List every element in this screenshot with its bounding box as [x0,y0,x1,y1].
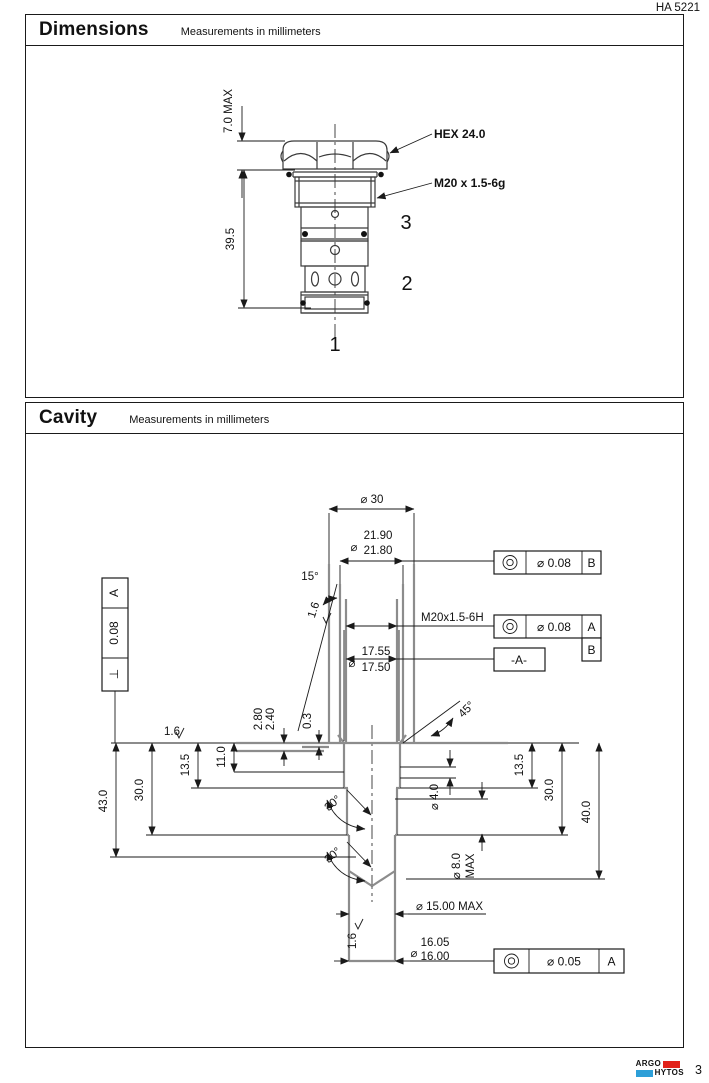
dim-dia2190: 21.90 [364,530,393,542]
dim-length: 39.5 [225,228,237,250]
fcf-top-datum: B [587,556,595,570]
perpendicularity-icon: ⊥ [107,669,121,679]
cavity-thread-label: M20x1.5-6H [421,612,484,624]
fcf-left-datum: A [107,589,121,597]
hex-label: HEX 24.0 [434,127,486,141]
dim-angle45: 45° [456,699,477,720]
dim-angle30-upper: 30° [323,794,344,814]
valve-drawing: HEX 24.0 M20 x 1.5-6g 7.0 MAX 39.5 3 2 1 [26,46,681,395]
dim-400: 40.0 [581,801,593,823]
datasheet-page: HA 5221 Dimensions Measurements in milli… [0,0,709,1083]
fcf-concentricity-top: ⌀ 0.08 B [494,551,601,574]
fcf-bottom-datum: A [607,955,615,969]
dim-dia80-max: MAX [465,853,477,878]
brand-red-block [663,1061,680,1068]
dim-dia1600: 16.00 [421,951,450,963]
dim-135-right: 13.5 [514,754,526,776]
cavity-dimension-lines [110,509,605,961]
dimensions-header: Dimensions Measurements in millimeters [26,15,683,46]
port-1-label: 1 [329,334,340,356]
fcf-concentricity-bottom: ⌀ 0.05 A [494,949,624,973]
cavity-title: Cavity [39,407,97,429]
cavity-drawing: ⌀ 0.08 B ⌀ 0.08 A B -A- [26,434,681,1045]
roughness-taper: 1.6 [306,601,322,620]
port-3-label: 3 [400,212,411,234]
cavity-section: Cavity Measurements in millimeters [25,402,684,1048]
dimensions-section: Dimensions Measurements in millimeters [25,14,684,398]
dim-angle30-lower: 30° [323,846,344,866]
dim-dia2180: 21.80 [364,545,393,557]
dim-280: 2.80 [253,708,265,730]
dim-240: 2.40 [265,708,277,730]
fcf-perpendicularity-left: A 0.08 ⊥ [102,578,128,691]
dim-angle15: 15° [301,571,318,583]
diameter-symbol: ⌀ [349,658,356,670]
page-number: 3 [695,1063,702,1077]
brand-name-bottom: HYTOS [655,1069,684,1077]
dim-height-max: 7.0 MAX [223,89,235,133]
dim-dia1750: 17.50 [362,662,391,674]
cavity-subtitle: Measurements in millimeters [129,414,269,426]
fcf-bottom-tolerance: ⌀ 0.05 [547,955,581,969]
diameter-symbol: ⌀ [351,542,358,554]
cavity-header: Cavity Measurements in millimeters [26,403,683,434]
dim-430: 43.0 [98,790,110,812]
dim-dia1755: 17.55 [362,646,391,658]
dim-dia1605: 16.05 [421,937,450,949]
surface-finish-icon [355,919,363,929]
port-2-label: 2 [401,273,412,295]
dim-dia1500max: ⌀ 15.00 MAX [416,901,483,913]
dim-03: 0.3 [302,713,314,729]
thread-label: M20 x 1.5-6g [434,176,505,190]
datum-a-box: -A- [494,648,545,671]
brand-name-top: ARGO [636,1060,662,1068]
roughness-bottom: 1.6 [347,933,359,949]
fcf-mid-datum-1: A [587,620,595,634]
diameter-symbol: ⌀ [411,948,418,960]
dim-dia40: ⌀ 4.0 [429,784,441,810]
surface-finish-icons [176,613,363,929]
brand-logo: ARGO HYTOS [636,1060,684,1077]
dimensions-title: Dimensions [39,19,149,41]
dim-dia80: ⌀ 8.0 [451,853,463,879]
dim-300-left: 30.0 [134,779,146,801]
fcf-left-tolerance: 0.08 [107,621,121,645]
dim-dia30: ⌀ 30 [361,494,384,506]
dim-300-right: 30.0 [544,779,556,801]
fcf-mid-tolerance: ⌀ 0.08 [537,620,571,634]
roughness-face: 1.6 [164,726,180,738]
datum-a-label: -A- [511,653,527,667]
dim-110: 11.0 [216,746,228,768]
fcf-top-tolerance: ⌀ 0.08 [537,556,571,570]
document-code: HA 5221 [656,2,700,14]
dimensions-subtitle: Measurements in millimeters [181,26,321,38]
fcf-mid-datum-2: B [587,643,595,657]
brand-blue-block [636,1070,653,1077]
dim-135-left: 13.5 [180,754,192,776]
